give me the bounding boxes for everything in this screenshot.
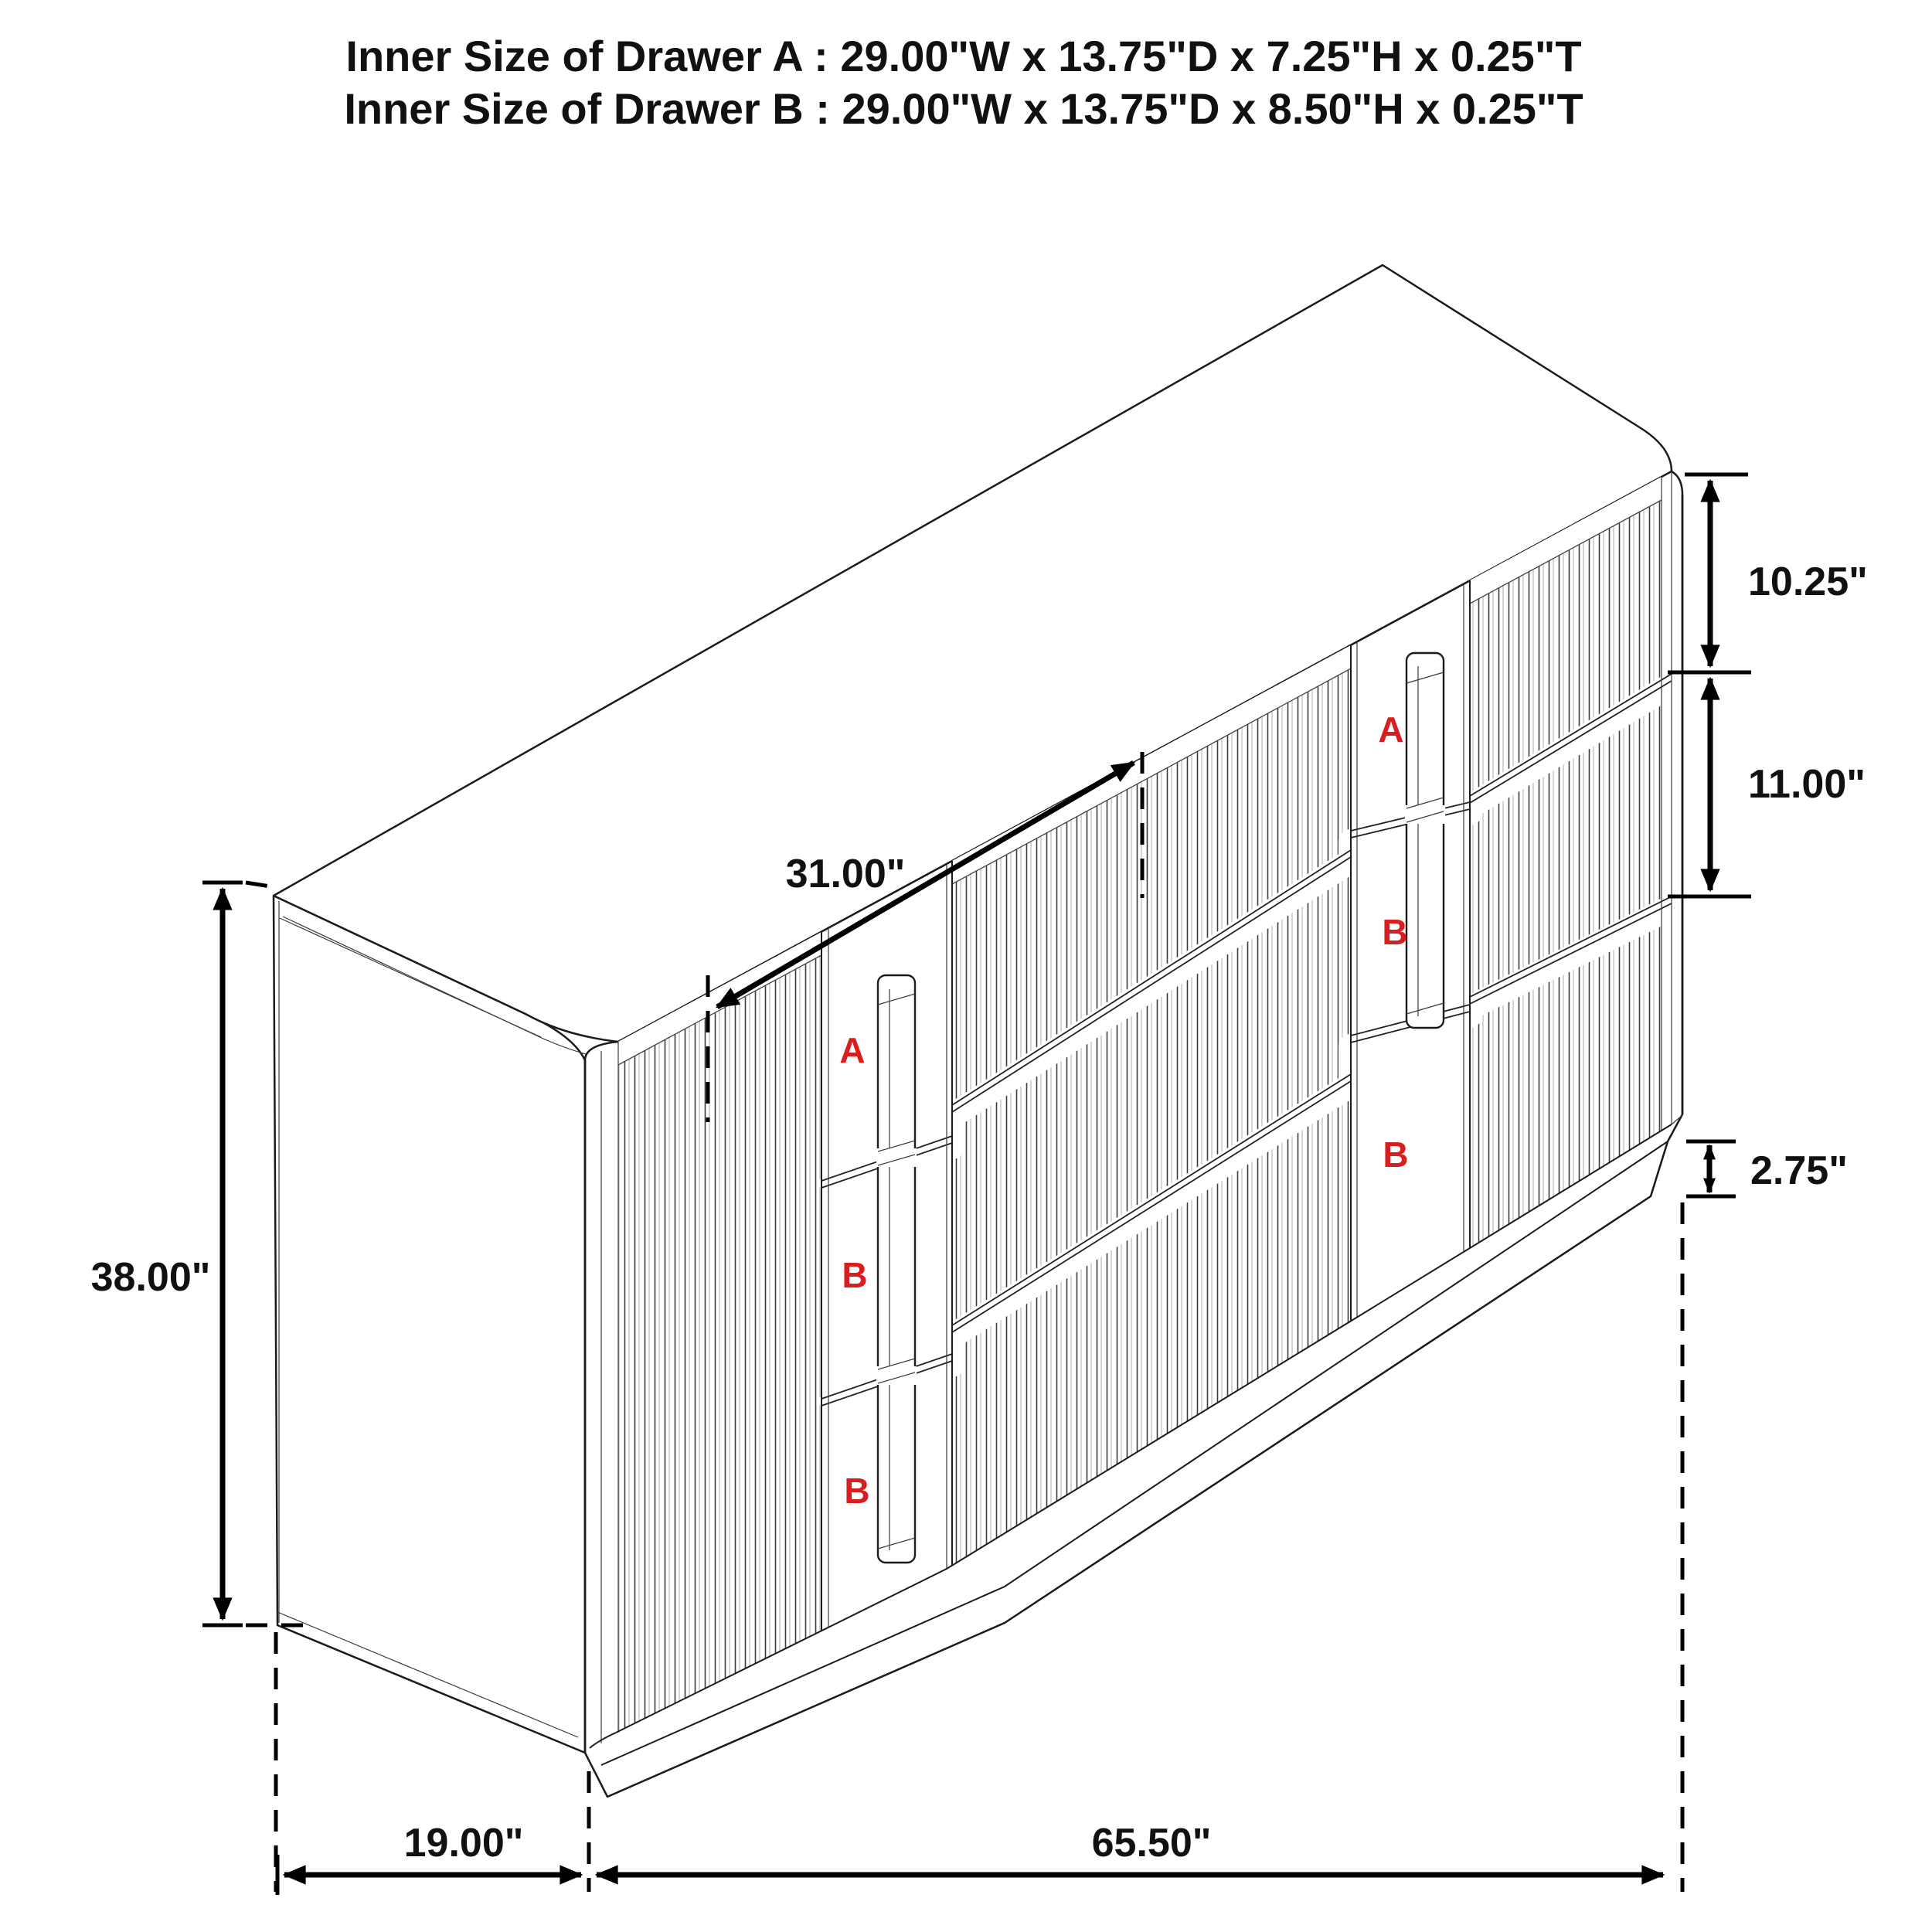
dim-base-height: 2.75" [1686, 1141, 1848, 1196]
dim-label-10-25: 10.25" [1748, 560, 1868, 604]
dim-label-38-00: 38.00" [91, 1255, 211, 1300]
drawer-label: A [1378, 709, 1403, 750]
dim-drawer-b-height: 11.00" [1668, 679, 1866, 896]
dim-label-11-00: 11.00" [1748, 762, 1866, 807]
title-line-1: Inner Size of Drawer A : 29.00"W x 13.75… [345, 32, 1581, 80]
dim-label-65-50: 65.50" [1092, 1821, 1212, 1866]
dim-label-19-00: 19.00" [404, 1821, 524, 1866]
drawer-label: B [844, 1471, 869, 1511]
title-block: Inner Size of Drawer A : 29.00"W x 13.75… [344, 32, 1583, 133]
fluted-door-left [618, 932, 821, 1732]
title-line-2: Inner Size of Drawer B : 29.00"W x 13.75… [344, 84, 1583, 133]
dim-drawer-a-height: 10.25" [1668, 474, 1868, 672]
dresser-dimension-diagram: A B B A B B 10.25" 11.00" 2 [0, 0, 1932, 1932]
drawer-label: B [1383, 1134, 1408, 1175]
drawer-handle-right [1405, 653, 1445, 1028]
cabinet-line-drawing: A B B A B B [274, 265, 1682, 1797]
dim-label-31-00: 31.00" [786, 852, 906, 896]
technical-drawing-page: A B B A B B 10.25" 11.00" 2 [0, 0, 1932, 1932]
fluted-panel-right [1470, 477, 1662, 1248]
drawer-label: B [1382, 912, 1407, 952]
left-side-panel [274, 896, 585, 1753]
dim-label-2-75: 2.75" [1750, 1148, 1848, 1193]
drawer-label: B [842, 1255, 867, 1295]
drawer-handle-left [876, 975, 917, 1563]
drawer-label: A [839, 1030, 865, 1070]
